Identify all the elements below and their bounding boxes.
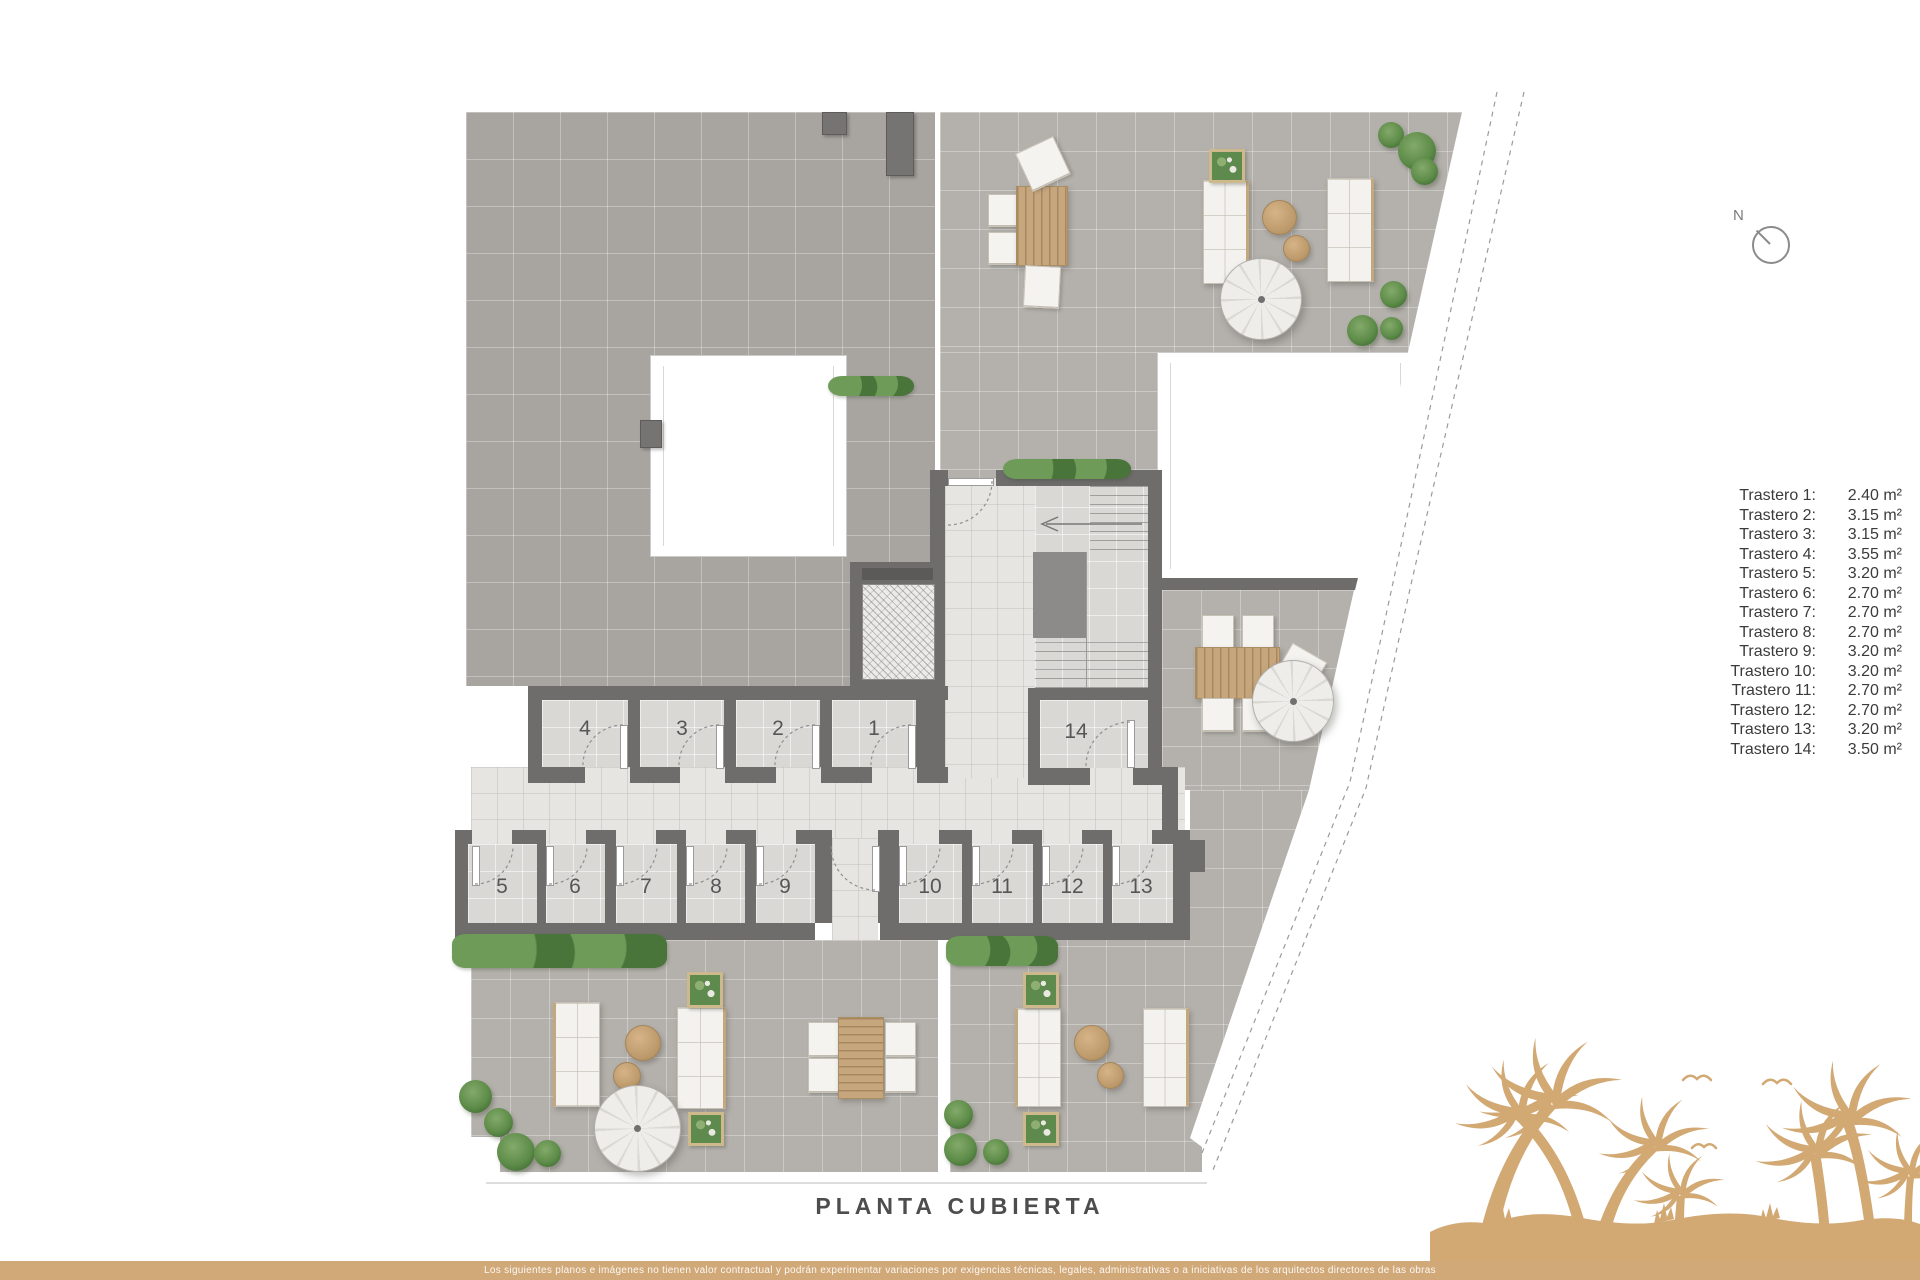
door-leaf bbox=[716, 725, 724, 769]
terrace-sofa bbox=[553, 1002, 600, 1107]
legend-row: Trastero 6:2.70 m² bbox=[1686, 584, 1902, 604]
wall-segment bbox=[586, 830, 616, 844]
wall-segment bbox=[916, 700, 930, 767]
legend-room-label: Trastero 9: bbox=[1686, 642, 1816, 662]
legend-room-label: Trastero 3: bbox=[1686, 525, 1816, 545]
wall-segment bbox=[930, 470, 948, 486]
wall-segment bbox=[528, 767, 585, 783]
wall-segment bbox=[939, 830, 972, 844]
legend-row: Trastero 12:2.70 m² bbox=[1686, 701, 1902, 721]
wall-segment bbox=[1103, 844, 1112, 923]
rooftop-chimney bbox=[640, 420, 662, 448]
wall-segment bbox=[1152, 830, 1190, 844]
legend-row: Trastero 7:2.70 m² bbox=[1686, 603, 1902, 623]
wall-segment bbox=[821, 767, 872, 783]
legend-row: Trastero 3:3.15 m² bbox=[1686, 525, 1902, 545]
terrace-chair bbox=[1023, 265, 1061, 309]
terrace-chair bbox=[1202, 698, 1234, 732]
wall-segment bbox=[796, 830, 832, 844]
room-label: 11 bbox=[991, 875, 1013, 899]
wall-segment bbox=[1162, 578, 1358, 590]
legend-room-label: Trastero 5: bbox=[1686, 564, 1816, 584]
door-leaf bbox=[616, 846, 624, 886]
wall-segment bbox=[1173, 844, 1190, 923]
wall-segment bbox=[1162, 767, 1178, 830]
legend-room-area: 3.20 m² bbox=[1816, 642, 1902, 662]
terrace-chair bbox=[1202, 615, 1234, 649]
wall-segment bbox=[1012, 830, 1042, 844]
rooftop-chimney bbox=[822, 112, 847, 135]
legend-room-label: Trastero 14: bbox=[1686, 740, 1816, 760]
legend-room-area: 3.15 m² bbox=[1816, 525, 1902, 545]
legend-room-area: 2.70 m² bbox=[1816, 681, 1902, 701]
coffee-table bbox=[1097, 1062, 1124, 1089]
dining-table bbox=[1016, 186, 1068, 266]
wall-segment bbox=[455, 830, 472, 844]
patio-void-right bbox=[1157, 352, 1414, 580]
terrace-chair bbox=[885, 1022, 916, 1057]
wall-segment bbox=[512, 830, 546, 844]
wall-segment bbox=[628, 700, 640, 767]
plan-title: PLANTA CUBIERTA bbox=[815, 1193, 1104, 1220]
wall-segment bbox=[1133, 768, 1162, 785]
legend-room-label: Trastero 2: bbox=[1686, 506, 1816, 526]
bush bbox=[484, 1108, 513, 1137]
legend-room-area: 3.55 m² bbox=[1816, 545, 1902, 565]
parasol bbox=[594, 1085, 681, 1172]
legend-row: Trastero 11:2.70 m² bbox=[1686, 681, 1902, 701]
legend-room-area: 3.20 m² bbox=[1816, 720, 1902, 740]
door-leaf bbox=[620, 725, 628, 769]
wall-segment bbox=[724, 700, 736, 767]
legend-row: Trastero 4:3.55 m² bbox=[1686, 545, 1902, 565]
bush bbox=[1380, 281, 1407, 308]
door-leaf bbox=[546, 846, 554, 886]
parasol bbox=[1252, 660, 1334, 742]
room-label: 1 bbox=[868, 717, 880, 741]
terrace-chair bbox=[808, 1058, 839, 1093]
terrace-sofa bbox=[677, 1007, 726, 1109]
room-label: 12 bbox=[1060, 875, 1083, 899]
legend-room-label: Trastero 4: bbox=[1686, 545, 1816, 565]
room-label: 9 bbox=[779, 875, 791, 899]
door-leaf bbox=[686, 846, 694, 886]
wall-segment bbox=[820, 700, 832, 767]
bush bbox=[459, 1080, 492, 1113]
core-corridor bbox=[945, 478, 1035, 778]
stair-void bbox=[1033, 552, 1086, 638]
legend-room-area: 2.70 m² bbox=[1816, 623, 1902, 643]
wall-segment bbox=[726, 830, 756, 844]
wall-segment bbox=[962, 844, 972, 923]
legend-row: Trastero 1:2.40 m² bbox=[1686, 486, 1902, 506]
legend-room-label: Trastero 12: bbox=[1686, 701, 1816, 721]
legend-room-area: 2.70 m² bbox=[1816, 603, 1902, 623]
wall-segment bbox=[745, 844, 756, 923]
disclaimer-text: Los siguientes planos e imágenes no tien… bbox=[484, 1265, 1436, 1276]
stair-steps bbox=[1090, 486, 1148, 552]
door-leaf bbox=[756, 846, 764, 886]
palm-tree bbox=[1479, 1036, 1625, 1234]
terrace-chair bbox=[808, 1022, 839, 1057]
palm-tree bbox=[1633, 1152, 1726, 1234]
wall-segment bbox=[630, 767, 680, 783]
terrace-chair bbox=[988, 194, 1018, 227]
bush bbox=[983, 1139, 1009, 1165]
room-label: 6 bbox=[569, 875, 581, 899]
north-label: N bbox=[1733, 207, 1744, 224]
elevator-car bbox=[862, 584, 935, 680]
hedge bbox=[452, 934, 667, 968]
rooftop-chimney bbox=[886, 112, 914, 176]
wall-segment bbox=[605, 844, 616, 923]
legend-room-label: Trastero 1: bbox=[1686, 486, 1816, 506]
wall-segment bbox=[1190, 840, 1205, 872]
terrace-sofa bbox=[1015, 1008, 1061, 1107]
terrace-sofa bbox=[1327, 178, 1374, 282]
door-leaf bbox=[908, 725, 916, 769]
bush bbox=[944, 1100, 973, 1129]
legend-row: Trastero 14:3.50 m² bbox=[1686, 740, 1902, 760]
terrace-sofa bbox=[1143, 1008, 1189, 1107]
room-label: 2 bbox=[772, 717, 784, 741]
parasol bbox=[1220, 258, 1302, 340]
legend-room-area: 2.70 m² bbox=[1816, 701, 1902, 721]
wall-segment bbox=[528, 686, 948, 700]
legend-room-label: Trastero 10: bbox=[1686, 662, 1816, 682]
legend-room-area: 2.70 m² bbox=[1816, 584, 1902, 604]
stair-divider bbox=[1086, 552, 1087, 690]
legend-row: Trastero 9:3.20 m² bbox=[1686, 642, 1902, 662]
terrace-chair bbox=[1242, 615, 1274, 649]
wall-segment bbox=[537, 844, 546, 923]
palm-tree bbox=[1755, 1099, 1874, 1234]
room-label: 8 bbox=[710, 875, 722, 899]
door-leaf bbox=[948, 478, 994, 486]
legend-row: Trastero 8:2.70 m² bbox=[1686, 623, 1902, 643]
bush bbox=[944, 1133, 977, 1166]
disclaimer-bar: Los siguientes planos e imágenes no tien… bbox=[0, 1261, 1920, 1280]
legend-room-area: 3.20 m² bbox=[1816, 662, 1902, 682]
wall-segment bbox=[656, 830, 686, 844]
coffee-table bbox=[1074, 1025, 1110, 1061]
room-label: 14 bbox=[1064, 720, 1087, 744]
wall-segment bbox=[930, 480, 945, 562]
door-leaf bbox=[1042, 846, 1050, 886]
hedge bbox=[946, 936, 1058, 966]
elevator-machinery bbox=[862, 568, 933, 580]
planter-box bbox=[687, 972, 723, 1008]
door-leaf bbox=[899, 846, 907, 886]
room-label: 7 bbox=[640, 875, 652, 899]
patio-void-left bbox=[650, 355, 847, 557]
bush bbox=[497, 1133, 535, 1171]
legend-row: Trastero 13:3.20 m² bbox=[1686, 720, 1902, 740]
coffee-table bbox=[625, 1025, 661, 1061]
wall-segment bbox=[815, 844, 832, 923]
stair-steps bbox=[1035, 642, 1148, 690]
legend-row: Trastero 5:3.20 m² bbox=[1686, 564, 1902, 584]
room-label: 10 bbox=[918, 875, 941, 899]
palm-beach-graphic bbox=[1430, 1020, 1920, 1262]
wall-segment bbox=[1148, 470, 1162, 700]
wall-segment bbox=[725, 767, 776, 783]
room-label: 13 bbox=[1129, 875, 1152, 899]
legend-room-area: 3.15 m² bbox=[1816, 506, 1902, 526]
legend-room-area: 2.40 m² bbox=[1816, 486, 1902, 506]
door-leaf bbox=[812, 725, 820, 769]
palm-tree bbox=[1781, 1059, 1914, 1234]
wall-segment bbox=[1033, 844, 1042, 923]
wall-segment bbox=[878, 844, 899, 923]
planter-box bbox=[1023, 972, 1059, 1008]
wall-segment bbox=[677, 844, 686, 923]
bush bbox=[1380, 317, 1403, 340]
legend-room-area: 3.20 m² bbox=[1816, 564, 1902, 584]
coffee-table bbox=[1283, 235, 1310, 262]
planter-box bbox=[1023, 1112, 1059, 1146]
door-leaf bbox=[872, 846, 880, 892]
coffee-table bbox=[1262, 200, 1297, 235]
palm-tree bbox=[1455, 1058, 1588, 1234]
planter-box bbox=[688, 1112, 724, 1146]
palm-tree bbox=[1859, 1129, 1920, 1234]
door-leaf bbox=[1127, 720, 1135, 768]
legend-room-label: Trastero 11: bbox=[1686, 681, 1816, 701]
wall-segment bbox=[930, 690, 945, 783]
door-leaf bbox=[972, 846, 980, 886]
wall-segment bbox=[1082, 830, 1112, 844]
bush bbox=[534, 1140, 561, 1167]
legend-room-label: Trastero 13: bbox=[1686, 720, 1816, 740]
wall-segment bbox=[878, 830, 899, 844]
planter-box bbox=[1209, 149, 1245, 183]
room-label: 5 bbox=[496, 875, 508, 899]
room-label: 3 bbox=[676, 717, 688, 741]
wall-segment bbox=[1028, 768, 1090, 785]
terrace-chair bbox=[885, 1058, 916, 1093]
area-legend: Trastero 1:2.40 m²Trastero 2:3.15 m²Tras… bbox=[1686, 486, 1902, 759]
legend-row: Trastero 2:3.15 m² bbox=[1686, 506, 1902, 526]
legend-room-label: Trastero 7: bbox=[1686, 603, 1816, 623]
palm-tree bbox=[1596, 1095, 1711, 1234]
terrace-chair bbox=[988, 232, 1018, 265]
dining-table bbox=[838, 1017, 884, 1099]
legend-room-label: Trastero 6: bbox=[1686, 584, 1816, 604]
bush bbox=[1347, 315, 1378, 346]
legend-room-area: 3.50 m² bbox=[1816, 740, 1902, 760]
hedge bbox=[828, 376, 914, 396]
bush bbox=[1411, 158, 1438, 185]
legend-row: Trastero 10:3.20 m² bbox=[1686, 662, 1902, 682]
door-leaf bbox=[1112, 846, 1120, 886]
legend-room-label: Trastero 8: bbox=[1686, 623, 1816, 643]
hedge bbox=[1003, 459, 1131, 479]
wall-segment bbox=[1028, 688, 1162, 700]
door-leaf bbox=[472, 846, 480, 886]
beach-mound bbox=[1430, 1213, 1920, 1262]
bird-icon bbox=[1683, 1076, 1791, 1148]
room-label: 4 bbox=[579, 717, 591, 741]
